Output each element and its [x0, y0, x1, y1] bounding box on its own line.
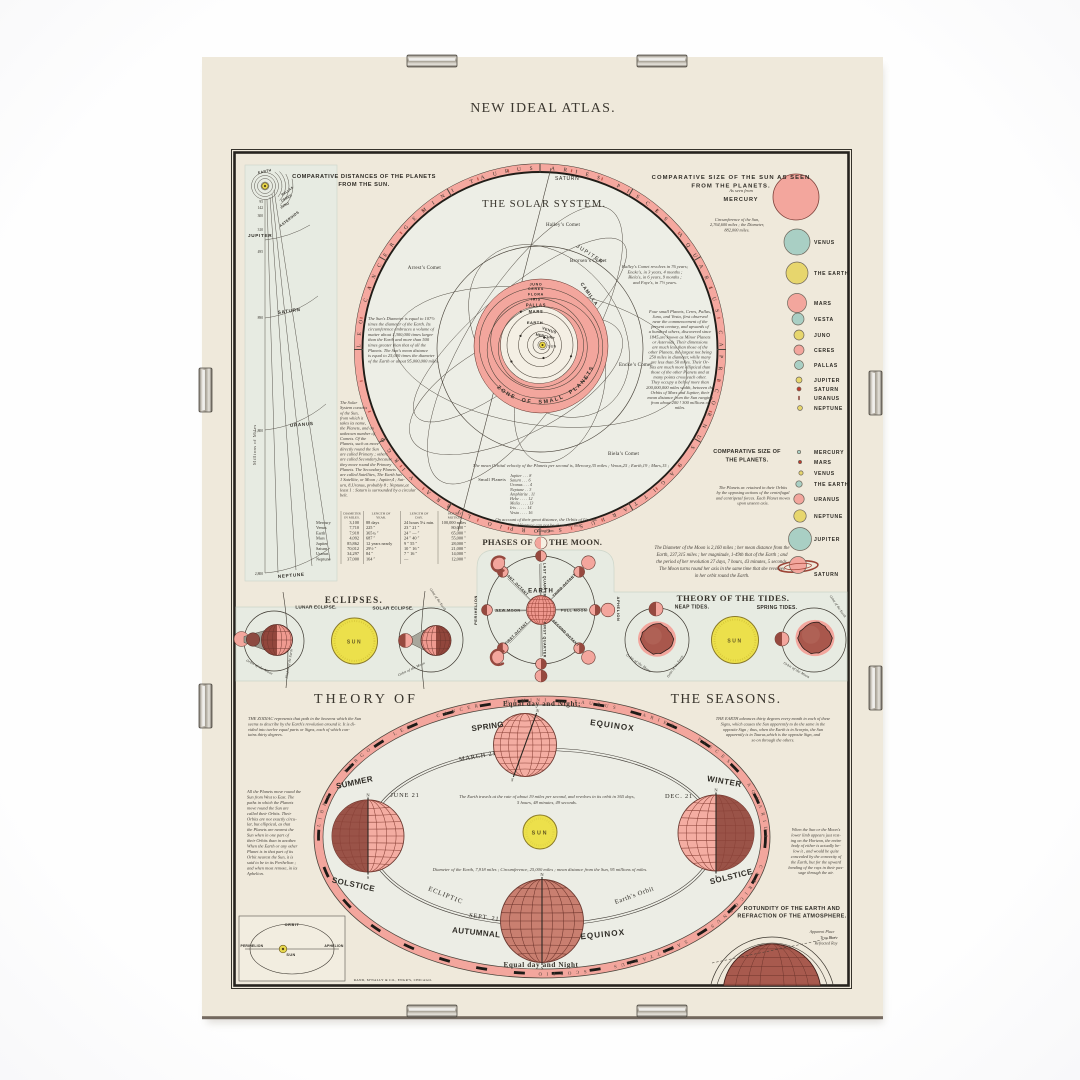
svg-text:THE EARTH: THE EARTH: [814, 482, 849, 488]
svg-text:FLORA: FLORA: [528, 293, 544, 297]
svg-text:THEORY OF: THEORY OF: [314, 692, 418, 707]
svg-text:than the Earth and more than: than the Earth and more than 500: [368, 337, 430, 342]
svg-text:SUN: SUN: [532, 831, 549, 837]
svg-text:THE SOLAR SYSTEM.: THE SOLAR SYSTEM.: [482, 198, 606, 210]
svg-text:paths in which the Planets: paths in which the Planets: [246, 800, 294, 805]
svg-text:When the Earth or any other: When the Earth or any other: [247, 844, 298, 849]
svg-text:As seen from: As seen from: [728, 188, 753, 193]
svg-text:NEPTUNE: NEPTUNE: [814, 406, 843, 412]
svg-text:MARS: MARS: [814, 301, 832, 307]
svg-text:LUNAR ECLIPSE.: LUNAR ECLIPSE.: [295, 605, 336, 610]
svg-text:Biela’s Comet: Biela’s Comet: [608, 452, 639, 457]
svg-text:Arrest’s Comet: Arrest’s Comet: [408, 266, 442, 271]
svg-text:SUN: SUN: [286, 953, 295, 957]
svg-text:lower limb appears just rest: lower limb appears just rest-: [791, 832, 841, 837]
svg-text:times the diameter of the Ear: times the diameter of the Earth. Its: [368, 321, 431, 326]
svg-text:Earth, 237,315 miles ; her ma: Earth, 237,315 miles ; her magnitude, 1-…: [656, 553, 789, 558]
svg-text:said to be in its Perihelion ;: said to be in its Perihelion ;: [247, 860, 297, 865]
svg-text:When the Sun or the Moon's: When the Sun or the Moon's: [792, 827, 841, 832]
svg-text:Sun when in one part of: Sun when in one part of: [247, 833, 290, 838]
svg-text:CERES: CERES: [814, 348, 835, 354]
svg-text:—: —: [403, 556, 409, 561]
svg-text:seems to describe by the Earth: seems to describe by the Earth's revolut…: [248, 721, 356, 726]
svg-text:300: 300: [258, 214, 264, 218]
svg-text:Millions of Miles: Millions of Miles: [252, 424, 257, 465]
svg-text:MERCURY: MERCURY: [814, 450, 844, 456]
svg-text:SATURN: SATURN: [814, 572, 839, 578]
svg-text:ECLIPSES.: ECLIPSES.: [325, 595, 383, 605]
svg-text:Brorsen’s Comet: Brorsen’s Comet: [570, 259, 607, 264]
svg-text:NEW IDEAL ATLAS.: NEW IDEAL ATLAS.: [470, 101, 616, 116]
svg-text:95: 95: [259, 200, 263, 204]
svg-text:Halley's Comet revolves in 76: Halley's Comet revolves in 76 years;: [621, 264, 689, 269]
svg-text:PERIHELION: PERIHELION: [241, 944, 264, 948]
svg-text:ROTUNDITY OF THE EARTH AND: ROTUNDITY OF THE EARTH AND: [744, 906, 841, 912]
svg-text:Planets. The Sun's mean dis: Planets. The Sun's mean distance: [367, 348, 428, 353]
svg-text:NEAP TIDES.: NEAP TIDES.: [675, 605, 710, 611]
svg-text:move round the Sun are: move round the Sun are: [247, 805, 289, 810]
svg-text:The Diameter of the Moon is 2,: The Diameter of the Moon is 2,160 miles …: [655, 546, 791, 551]
svg-text:DEC. 21: DEC. 21: [665, 793, 693, 800]
svg-text:Apparent Place: Apparent Place: [809, 929, 835, 934]
svg-text:called their Orbits. Their: called their Orbits. Their: [247, 811, 291, 816]
svg-text:NEW MOON: NEW MOON: [496, 609, 521, 613]
svg-text:MERCURY: MERCURY: [723, 197, 758, 203]
svg-text:FROM THE SUN.: FROM THE SUN.: [338, 182, 389, 188]
svg-text:body of either is actually be-: body of either is actually be-: [791, 843, 841, 848]
svg-text:APHELION: APHELION: [616, 597, 621, 622]
svg-text:tains thirty degrees.: tains thirty degrees.: [248, 732, 283, 737]
svg-text:NEPTUNE: NEPTUNE: [814, 514, 843, 520]
svg-text:Encke’s Comet: Encke’s Comet: [619, 363, 652, 368]
svg-text:LAST QUARTER: LAST QUARTER: [543, 563, 547, 597]
svg-text:VENUS: VENUS: [814, 471, 835, 477]
svg-text:miles.: miles.: [675, 405, 686, 410]
svg-text:the period of her revolution 2: the period of her revolution 27 days, 7 …: [656, 560, 787, 565]
svg-text:True Place: True Place: [820, 935, 838, 940]
svg-text:Aphelion.: Aphelion.: [246, 871, 264, 876]
svg-text:ORBIT: ORBIT: [285, 923, 300, 927]
svg-text:Sun from West to East. The: Sun from West to East. The: [247, 795, 294, 800]
svg-text:JUNO: JUNO: [530, 283, 543, 287]
svg-text:142: 142: [258, 206, 264, 210]
svg-text:and Neptune can not be shown o: and Neptune can not be shown on this: [512, 522, 581, 527]
svg-text:EARTH: EARTH: [528, 589, 554, 595]
svg-text:THE SEASONS.: THE SEASONS.: [671, 691, 782, 706]
svg-text:495: 495: [258, 250, 264, 254]
svg-text:SUN: SUN: [347, 640, 362, 646]
svg-text:COMPARATIVE DISTANCES OF THE P: COMPARATIVE DISTANCES OF THE PLANETS: [292, 174, 436, 180]
svg-text:Neptune: Neptune: [316, 556, 331, 561]
svg-text:REFRACTION OF THE ATMOSPHERE.: REFRACTION OF THE ATMOSPHERE.: [737, 913, 846, 919]
svg-text:JUNE 21: JUNE 21: [390, 792, 419, 799]
svg-text:the Planets are nearest the: the Planets are nearest the: [247, 827, 294, 832]
svg-text:THEORY OF THE TIDES.: THEORY OF THE TIDES.: [677, 593, 790, 603]
svg-text:THE MOON.: THE MOON.: [549, 537, 602, 547]
svg-text:THE ZODIAC represents that pat: THE ZODIAC represents that path in the h…: [248, 716, 362, 721]
svg-text:Diagram.: Diagram.: [536, 528, 554, 533]
svg-text:circumference embraces a volum: circumference embraces a volume of: [368, 327, 435, 332]
svg-text:All the Planets move round the: All the Planets move round the: [246, 789, 301, 794]
svg-text:FULL MOON: FULL MOON: [561, 609, 587, 613]
svg-text:Small Planets: Small Planets: [478, 477, 506, 482]
svg-text:in her orbit round the Earth.: in her orbit round the Earth.: [695, 574, 750, 579]
svg-text:COMPARATIVE SIZE OF THE SUN AS: COMPARATIVE SIZE OF THE SUN AS SEEN: [652, 175, 811, 181]
svg-text:MARS: MARS: [529, 309, 544, 314]
svg-text:sage through the air.: sage through the air.: [798, 870, 833, 875]
svg-text:THE EARTH advances thirty degr: THE EARTH advances thirty degrees every …: [716, 716, 830, 721]
svg-text:times greater than that of: times greater than that of all the: [368, 343, 426, 348]
svg-text:APHELION: APHELION: [324, 944, 343, 948]
svg-text:THE PLANETS.: THE PLANETS.: [726, 457, 769, 463]
svg-text:PALLAS: PALLAS: [814, 363, 838, 369]
svg-text:SOLAR ECLIPSE.: SOLAR ECLIPSE.: [372, 606, 413, 611]
svg-text:310: 310: [258, 228, 264, 232]
svg-text:The Moon turns round her axis: The Moon turns round her axis in the sam…: [659, 567, 785, 572]
svg-text:URANUS: URANUS: [814, 396, 840, 402]
svg-text:164 ″: 164 ″: [366, 556, 376, 561]
svg-text:URANUS: URANUS: [814, 497, 840, 503]
svg-text:concealed by the convexity: concealed by the convexity of: [791, 854, 842, 859]
svg-text:PERIHELION: PERIHELION: [473, 595, 478, 625]
svg-text:JUPITER: JUPITER: [814, 378, 840, 384]
svg-text:so on through the others.: so on through the others.: [752, 738, 795, 743]
svg-text:Equal day and Night;: Equal day and Night;: [503, 700, 581, 708]
svg-text:PHASES OF: PHASES OF: [482, 537, 533, 547]
svg-text:FIRST QUARTER: FIRST QUARTER: [543, 622, 547, 658]
svg-text:JUPITER: JUPITER: [814, 537, 840, 543]
svg-text:The Sun's Diameter is equal to: The Sun's Diameter is equal to 107½: [368, 316, 435, 321]
svg-text:890: 890: [258, 316, 264, 320]
svg-text:EARTH: EARTH: [527, 320, 543, 325]
svg-text:PALLAS: PALLAS: [526, 303, 546, 308]
svg-text:IRIS: IRIS: [531, 298, 541, 302]
svg-text:JUPITER: JUPITER: [248, 233, 272, 238]
svg-text:least 1 : Saturn is surroun: least 1 : Saturn is surrounded by a circ…: [340, 488, 416, 493]
svg-text:CERES: CERES: [528, 287, 544, 291]
svg-text:VENUS: VENUS: [814, 240, 835, 246]
svg-text:Vesta . . . . 16: Vesta . . . . 16: [510, 510, 533, 515]
svg-text:Equal day and Night: Equal day and Night: [503, 961, 578, 969]
svg-text:SUN: SUN: [548, 345, 557, 349]
svg-text:VESTA: VESTA: [814, 317, 834, 323]
svg-text:Orbits are not exactly circu-: Orbits are not exactly circu-: [247, 816, 297, 821]
svg-text:Refracted Ray: Refracted Ray: [814, 941, 838, 946]
svg-text:their Orbits than in another.: their Orbits than in another.: [247, 838, 296, 843]
svg-text:upon unseen axis.: upon unseen axis.: [737, 501, 768, 506]
svg-text:COMPARATIVE SIZE OF: COMPARATIVE SIZE OF: [713, 449, 781, 455]
svg-text:SATURN: SATURN: [814, 387, 839, 393]
svg-text:THE EARTH: THE EARTH: [814, 271, 849, 277]
svg-text:belt.: belt.: [340, 493, 348, 498]
svg-text:JUNO: JUNO: [814, 333, 831, 339]
svg-text:MARS: MARS: [814, 460, 832, 466]
svg-text:bending of the rays in their p: bending of the rays in their pas-: [788, 865, 844, 870]
svg-text:SUN: SUN: [727, 639, 742, 645]
svg-text:Planet is in that part of its: Planet is in that part of its: [246, 849, 293, 854]
svg-text:SATURN: SATURN: [555, 176, 579, 182]
svg-text:Halley’s Comet: Halley’s Comet: [546, 223, 580, 228]
svg-text:SPRING TIDES.: SPRING TIDES.: [757, 605, 798, 611]
